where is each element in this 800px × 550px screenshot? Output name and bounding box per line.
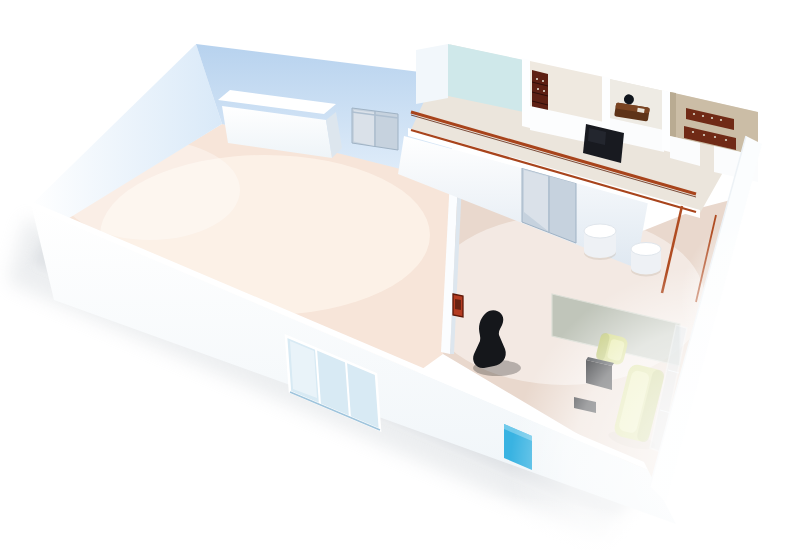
bookshelf (532, 70, 548, 112)
archive-side-shade (670, 92, 676, 137)
partition-1-2 (522, 58, 530, 128)
round-table-2 (631, 243, 661, 277)
office1-left-wall (416, 44, 448, 104)
floorplan-stage (0, 0, 800, 550)
fade-bottom-left (0, 310, 130, 490)
floorplan-svg (0, 0, 800, 550)
partition-3-4 (662, 90, 670, 152)
sliding-door-back (352, 108, 398, 150)
wall-picture (453, 294, 463, 317)
round-table-1 (584, 224, 616, 260)
